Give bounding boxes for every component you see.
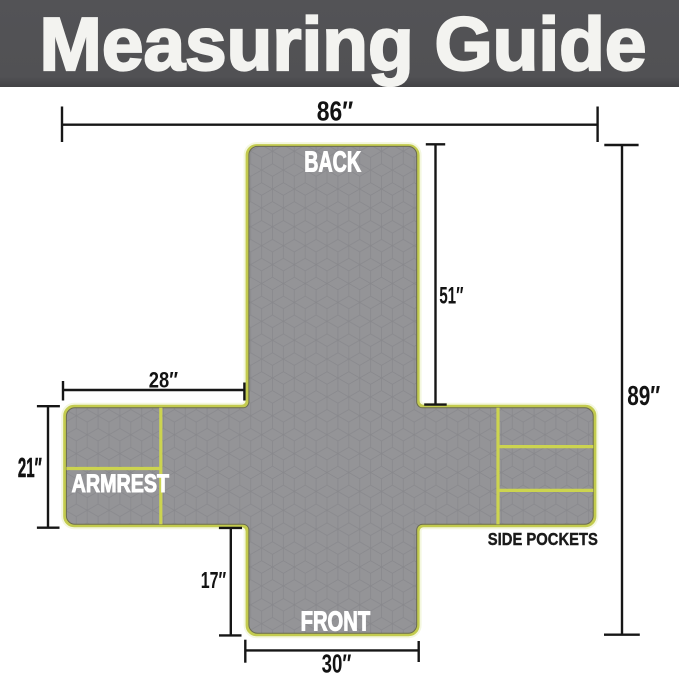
- svg-text:SIDE POCKETS: SIDE POCKETS: [488, 529, 598, 549]
- svg-text:86″: 86″: [317, 96, 353, 127]
- svg-text:30″: 30″: [322, 648, 352, 674]
- svg-text:FRONT: FRONT: [301, 606, 371, 637]
- svg-text:89″: 89″: [627, 380, 660, 411]
- svg-text:51″: 51″: [439, 284, 463, 310]
- svg-text:21″: 21″: [18, 452, 42, 483]
- svg-text:ARMREST: ARMREST: [72, 471, 170, 498]
- svg-text:17″: 17″: [201, 567, 227, 593]
- svg-text:BACK: BACK: [304, 147, 361, 179]
- svg-text:28″: 28″: [149, 367, 178, 392]
- svg-text:Measuring Guide: Measuring Guide: [40, 2, 647, 86]
